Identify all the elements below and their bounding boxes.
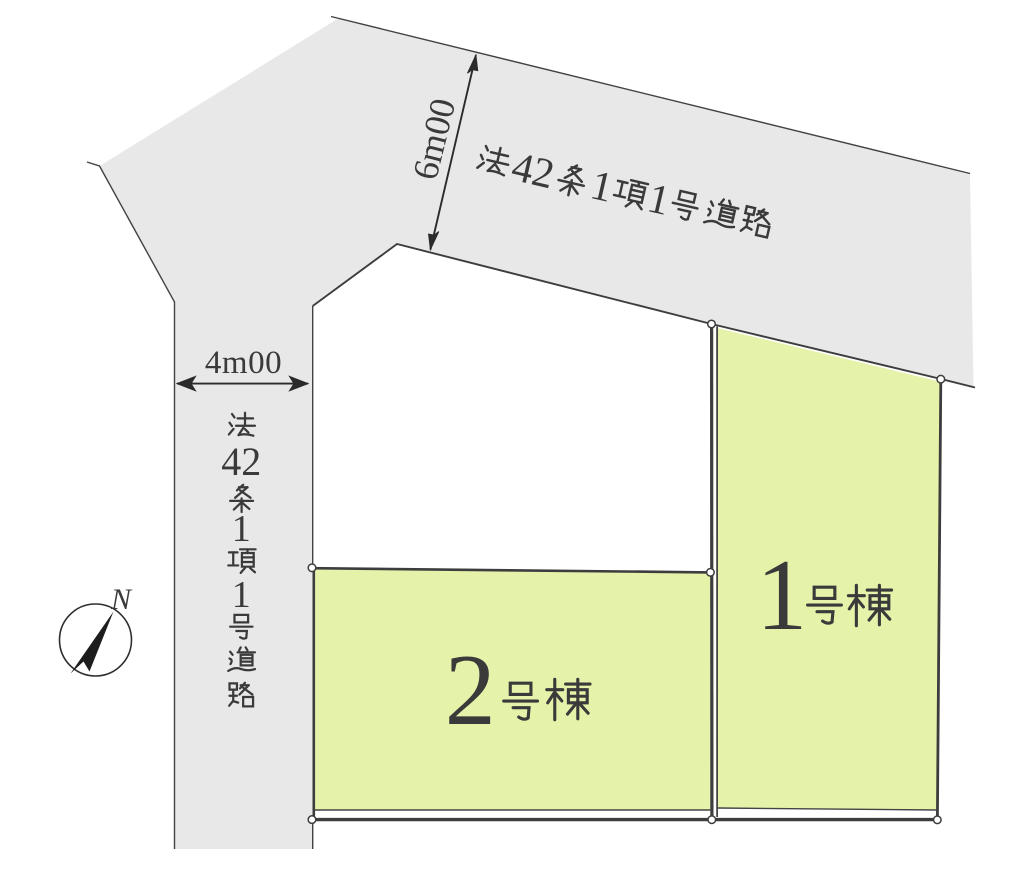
svg-text:1: 1 bbox=[232, 508, 251, 550]
svg-text:1: 1 bbox=[756, 539, 807, 652]
svg-text:2: 2 bbox=[445, 634, 496, 747]
svg-text:N: N bbox=[110, 583, 133, 616]
svg-text:42: 42 bbox=[221, 439, 261, 484]
svg-text:1: 1 bbox=[232, 574, 251, 616]
svg-text:4m00: 4m00 bbox=[205, 345, 282, 381]
